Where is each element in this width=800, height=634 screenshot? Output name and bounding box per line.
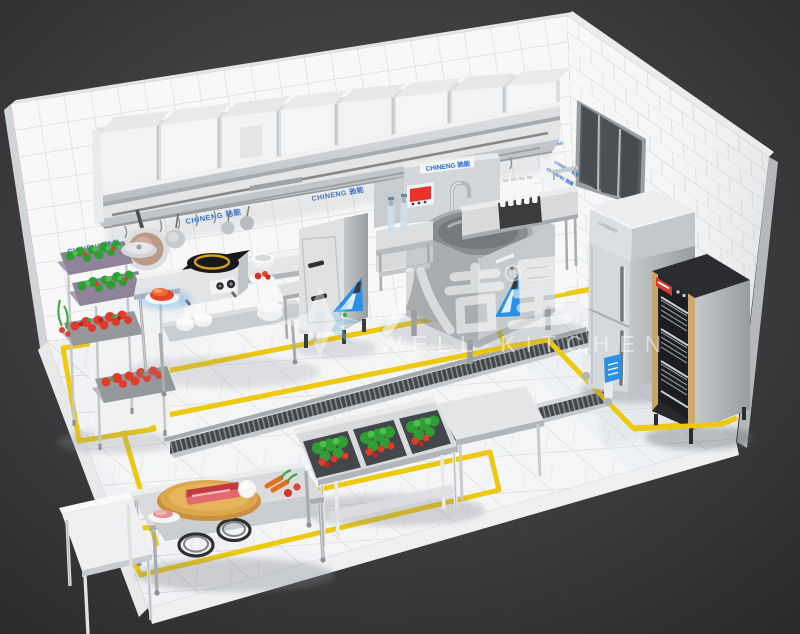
svg-text:R: R <box>510 269 517 279</box>
svg-text:WELL-KITCHEN: WELL-KITCHEN <box>380 331 671 357</box>
